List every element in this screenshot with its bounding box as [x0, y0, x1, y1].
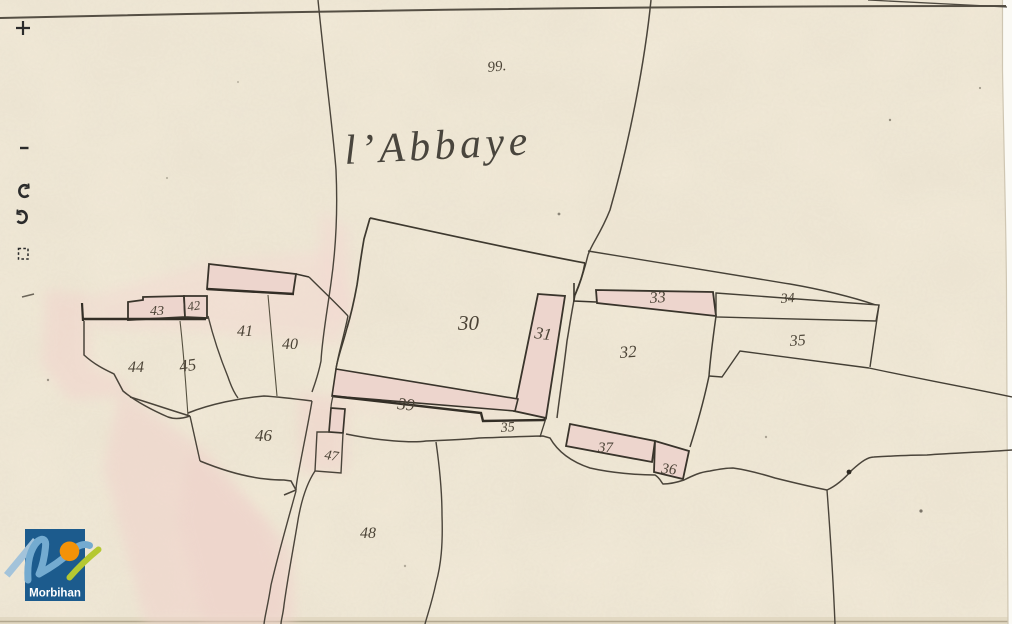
svg-text:30: 30 [457, 311, 480, 335]
svg-text:35: 35 [788, 332, 806, 350]
svg-text:43: 43 [150, 304, 164, 319]
svg-text:44: 44 [128, 359, 144, 376]
svg-text:33: 33 [648, 289, 666, 307]
svg-text:34: 34 [779, 291, 795, 307]
svg-text:41: 41 [237, 323, 253, 340]
svg-text:35: 35 [499, 420, 515, 436]
svg-text:45: 45 [178, 355, 197, 376]
svg-text:39: 39 [396, 394, 416, 415]
svg-text:42: 42 [186, 297, 201, 314]
svg-text:Morbihan: Morbihan [29, 588, 81, 600]
svg-text:40: 40 [282, 336, 298, 353]
svg-text:32: 32 [618, 342, 638, 362]
svg-text:99.: 99. [487, 58, 507, 76]
svg-text:36: 36 [660, 461, 678, 479]
svg-text:37: 37 [597, 440, 615, 456]
svg-text:l’Abbaye: l’Abbaye [343, 118, 533, 174]
svg-text:46: 46 [255, 426, 273, 445]
svg-text:48: 48 [360, 525, 376, 542]
svg-text:31: 31 [532, 323, 552, 344]
